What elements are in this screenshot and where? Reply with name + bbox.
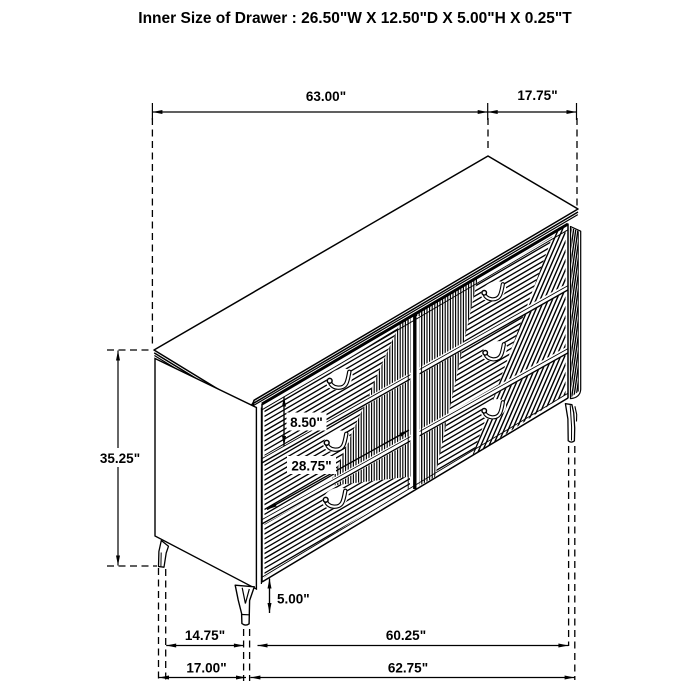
svg-text:28.75": 28.75" [291,459,331,474]
svg-text:5.00": 5.00" [277,592,310,607]
svg-text:63.00": 63.00" [306,89,346,104]
svg-text:17.75": 17.75" [517,88,557,103]
svg-text:8.50": 8.50" [290,415,323,430]
svg-text:17.00": 17.00" [186,661,226,676]
svg-text:14.75": 14.75" [185,628,225,643]
svg-text:35.25": 35.25" [100,451,140,466]
svg-text:62.75": 62.75" [388,661,428,676]
svg-text:Inner Size of Drawer : 26.50"W: Inner Size of Drawer : 26.50"W X 12.50"D… [138,10,572,27]
svg-text:60.25": 60.25" [386,628,426,643]
